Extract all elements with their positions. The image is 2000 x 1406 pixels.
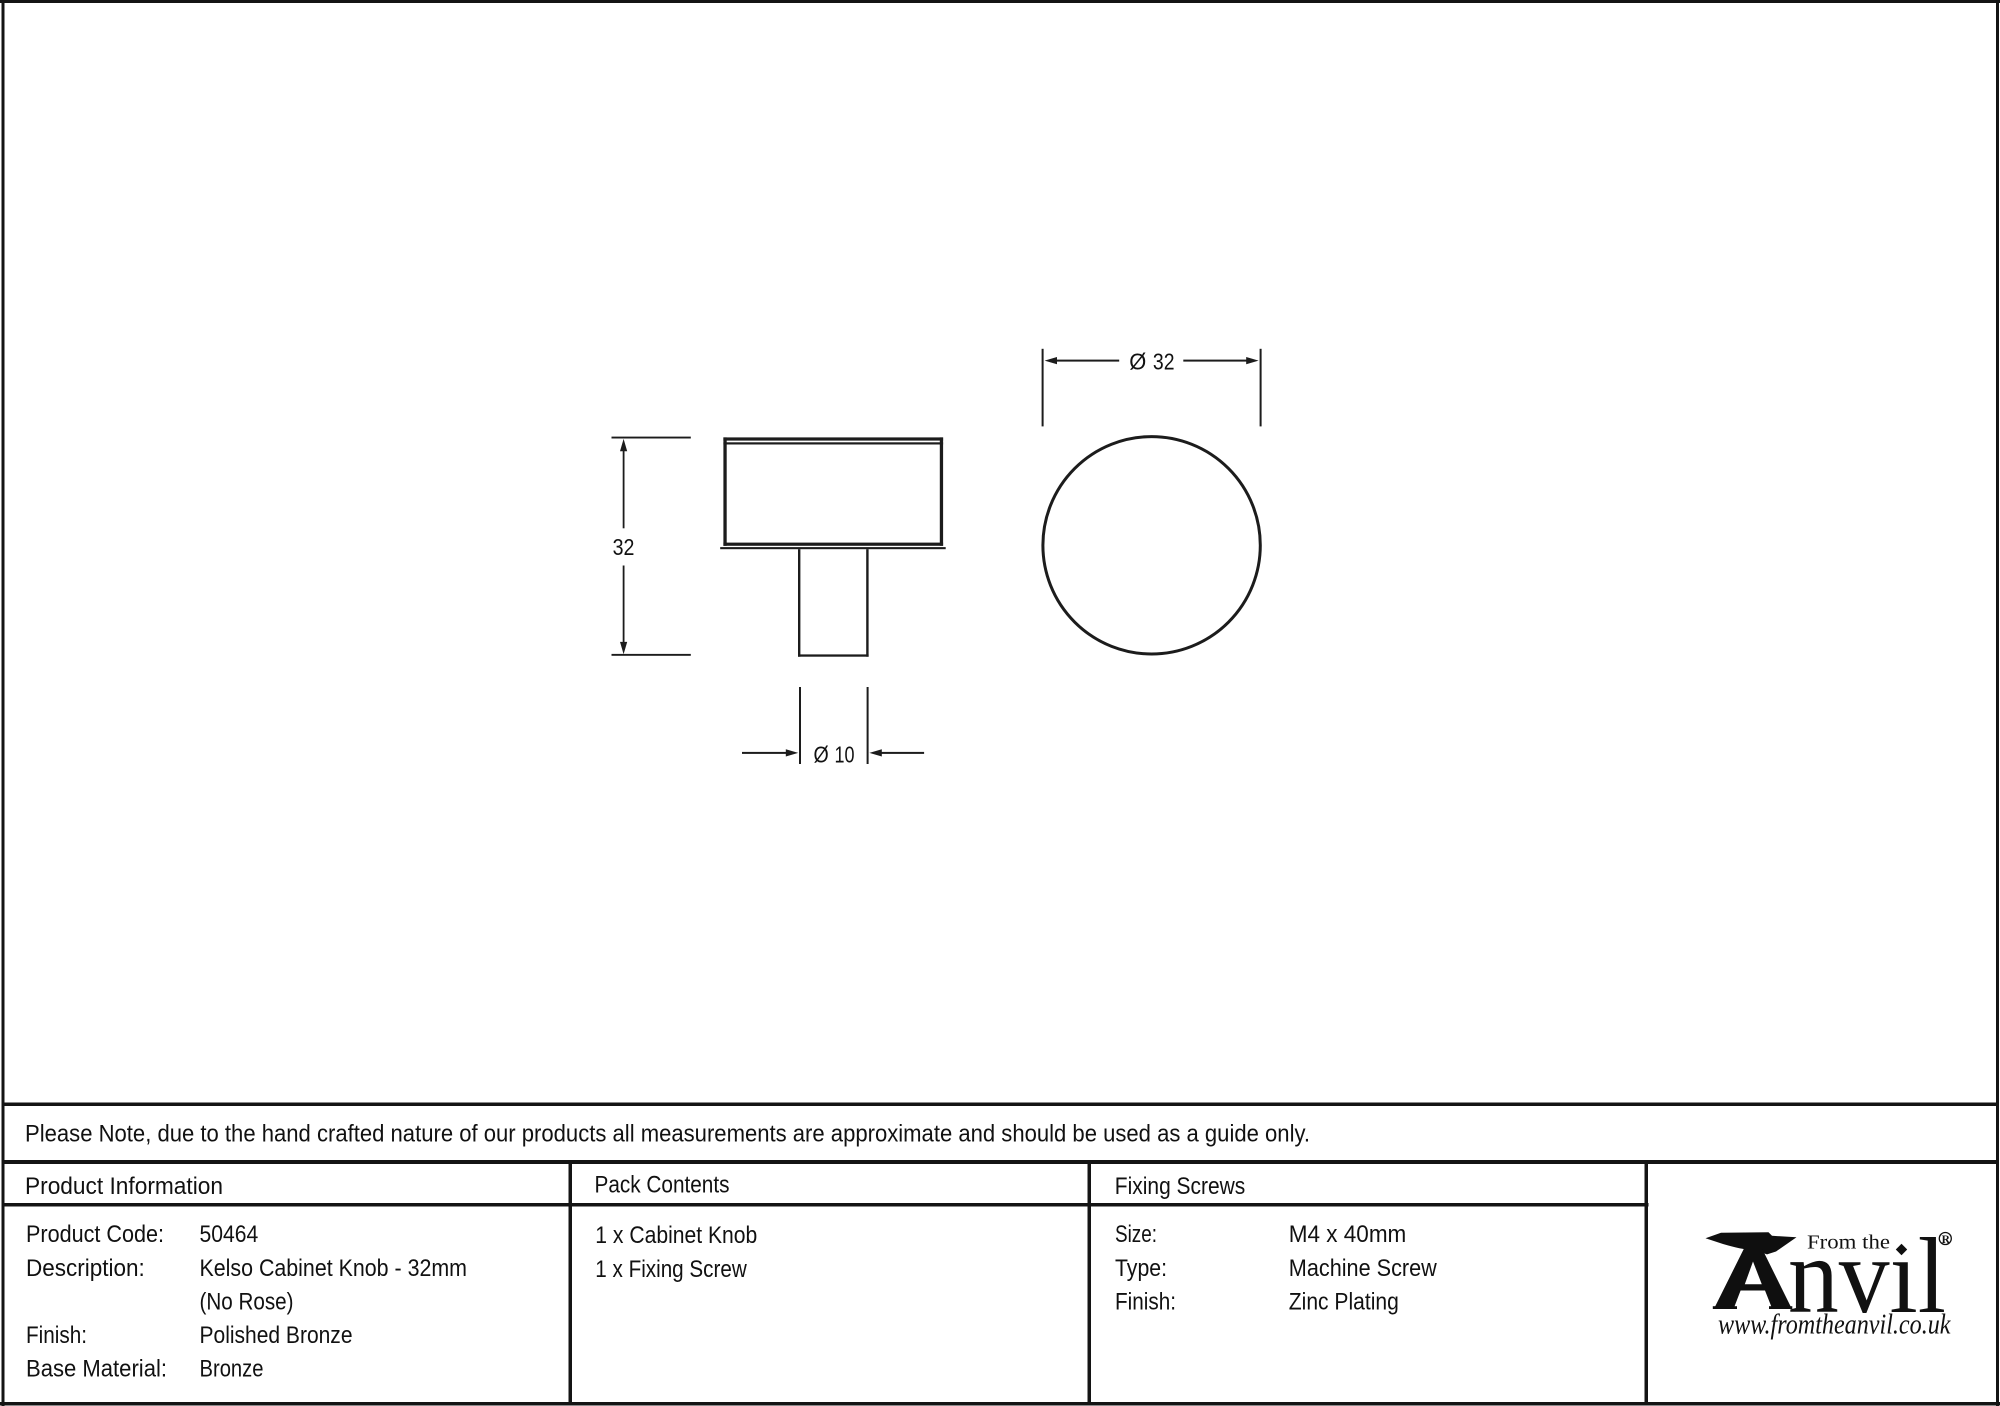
svg-text:Finish:: Finish: — [1115, 1288, 1176, 1315]
svg-text:1 x Fixing Screw: 1 x Fixing Screw — [595, 1256, 747, 1283]
svg-text:(No Rose): (No Rose) — [200, 1288, 294, 1315]
svg-text:Zinc Plating: Zinc Plating — [1289, 1288, 1399, 1315]
svg-text:Product Information: Product Information — [25, 1173, 223, 1200]
svg-text:Size:: Size: — [1115, 1221, 1157, 1248]
svg-text:Ø: Ø — [814, 742, 829, 768]
svg-text:Description:: Description: — [26, 1255, 145, 1282]
svg-text:Fixing Screws: Fixing Screws — [1115, 1173, 1246, 1200]
svg-text:Pack Contents: Pack Contents — [595, 1172, 730, 1199]
svg-text:Type:: Type: — [1115, 1255, 1167, 1282]
svg-text:Bronze: Bronze — [200, 1356, 264, 1383]
svg-text:M4 x 40mm: M4 x 40mm — [1289, 1221, 1407, 1248]
svg-text:Machine Screw: Machine Screw — [1289, 1255, 1437, 1282]
svg-text:10: 10 — [835, 742, 855, 768]
svg-text:Please Note, due to the hand c: Please Note, due to the hand crafted nat… — [25, 1120, 1310, 1147]
svg-text:Product Code:: Product Code: — [26, 1221, 164, 1248]
svg-text:Base Material:: Base Material: — [26, 1356, 167, 1383]
svg-text:Ø: Ø — [1129, 349, 1146, 375]
svg-text:32: 32 — [613, 534, 635, 560]
svg-text:32: 32 — [1153, 349, 1175, 375]
svg-text:Finish:: Finish: — [26, 1322, 87, 1349]
svg-text:Kelso Cabinet Knob - 32mm: Kelso Cabinet Knob - 32mm — [200, 1255, 468, 1282]
svg-text:www.fromtheanvil.co.uk: www.fromtheanvil.co.uk — [1718, 1309, 1951, 1341]
svg-text:R: R — [1942, 1234, 1951, 1246]
svg-text:50464: 50464 — [200, 1221, 259, 1248]
svg-text:Polished Bronze: Polished Bronze — [200, 1322, 353, 1349]
svg-text:1 x Cabinet Knob: 1 x Cabinet Knob — [595, 1222, 757, 1249]
